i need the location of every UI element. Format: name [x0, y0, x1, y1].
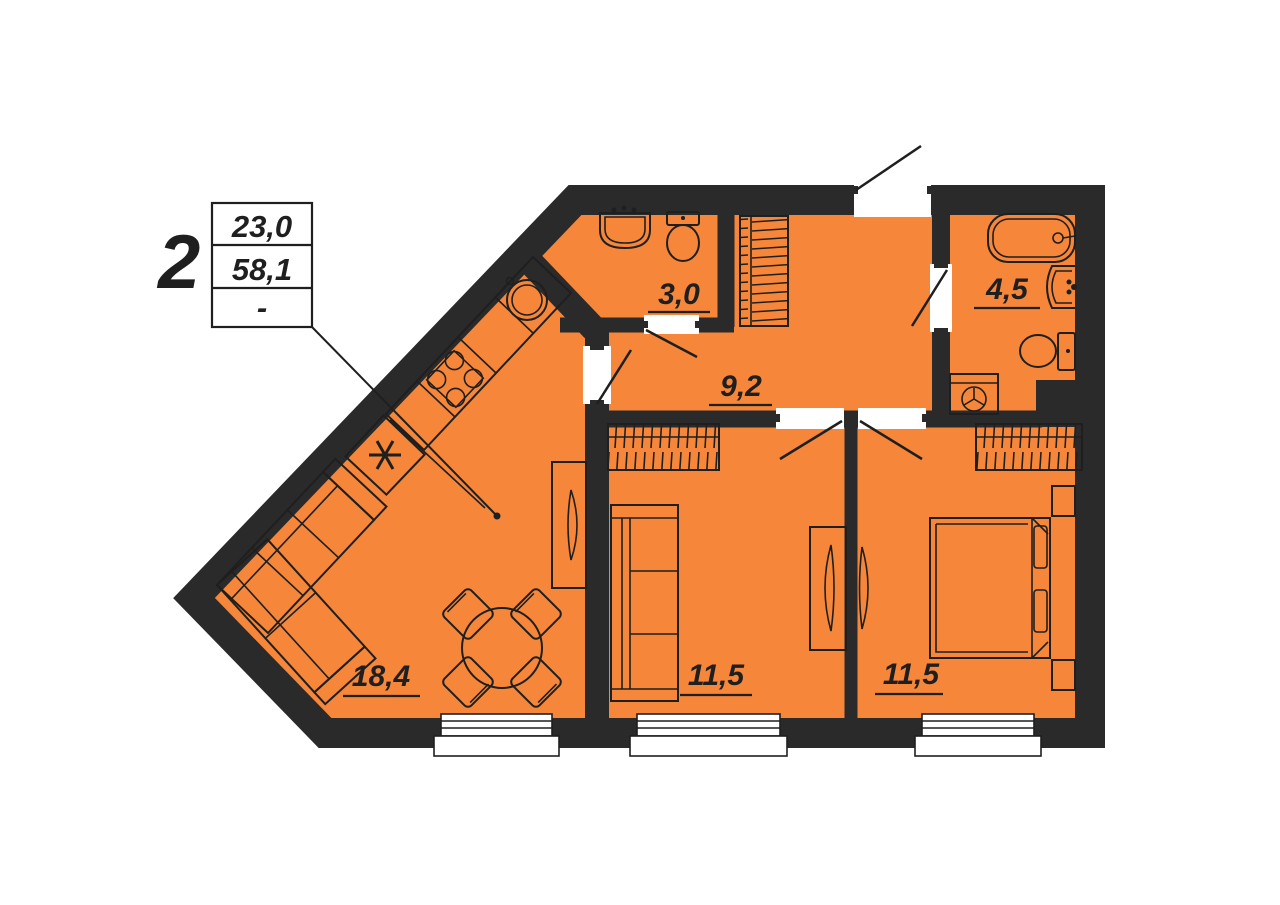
duct-block-bathroom [1036, 380, 1078, 427]
wc-toilet-button [681, 216, 685, 220]
bath-sink-tap-icon [1067, 280, 1072, 285]
bath-sink-tap-icon [1067, 290, 1072, 295]
bedroom2-door-jamb [922, 414, 926, 422]
room-label-living-kitchen: 18,4 [352, 660, 411, 693]
bath-toilet-button [1066, 349, 1070, 353]
room-label-bedroom1: 11,5 [688, 659, 745, 692]
wc-door-jamb-left [644, 321, 648, 328]
wc-sink-tap-icon [612, 208, 617, 213]
hall-wardrobe [740, 216, 788, 326]
unit-rooms-count: 2 [156, 220, 200, 305]
wc-door-jamb-right [695, 321, 699, 328]
room-label-wc: 3,0 [658, 278, 700, 311]
hall-wardrobe-hatch [740, 216, 788, 326]
hall-door-jamb-top [590, 346, 604, 350]
room-label-bathroom: 4,5 [985, 273, 1029, 306]
unit-info-table: 23,0 58,1 - [212, 203, 312, 327]
wc-sink-tap-icon [622, 206, 627, 211]
bedroom2-wardrobe [976, 424, 1082, 470]
bedroom1-door-jamb [776, 414, 780, 422]
table-row-living-area: 23,0 [231, 209, 292, 244]
window-bedroom1 [630, 714, 787, 756]
entrance-opening [854, 183, 931, 217]
windows [434, 714, 1041, 756]
bathroom-door-jamb-top [934, 264, 948, 268]
bathroom-door-opening [930, 264, 952, 332]
floor-plan-drawing: 3,0 4,5 9,2 18,4 11,5 11,5 2 23,0 58,1 - [0, 0, 1280, 905]
floor-plan-page: 3,0 4,5 9,2 18,4 11,5 11,5 2 23,0 58,1 - [0, 0, 1280, 905]
leader-endpoint [494, 513, 501, 520]
hall-door-opening [583, 346, 611, 404]
bedroom1-wardrobe [608, 424, 719, 470]
wc-sink-tap-icon [632, 208, 637, 213]
table-row-extra: - [257, 290, 267, 325]
bathroom-door-jamb-bottom [934, 328, 948, 332]
window-bedroom2 [915, 714, 1041, 756]
table-row-total-area: 58,1 [232, 252, 292, 287]
bath-sink-tap-icon [1071, 284, 1077, 290]
room-label-bedroom2: 11,5 [883, 658, 940, 691]
window-living [434, 714, 559, 756]
room-label-hallway: 9,2 [720, 370, 762, 403]
entrance-jamb-right [927, 186, 931, 194]
wc-door-opening [644, 315, 699, 334]
